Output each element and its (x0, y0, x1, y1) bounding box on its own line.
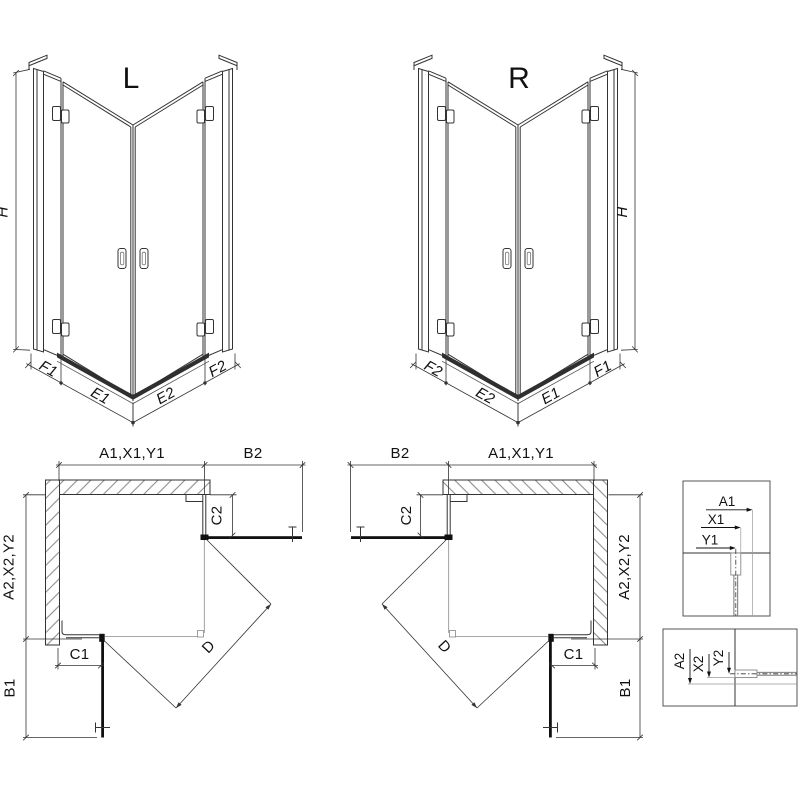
shower-enclosure-technical-drawing: L R H H F1 E1 E2 F2 F2 E2 E1 F1 A1,X1,Y1… (0, 0, 800, 800)
dim-side-width-left: A2,X2,Y2 (1, 534, 18, 600)
dim-b2-right: B2 (391, 445, 410, 462)
detail-a1-label: A1 (719, 494, 736, 509)
dim-b1-right: B1 (617, 679, 634, 698)
dim-e1-right: E1 (538, 384, 563, 408)
detail-x2-label: X2 (691, 656, 706, 673)
dim-c2-left: C2 (209, 506, 226, 526)
dim-f1-left: F1 (36, 357, 60, 381)
view-title-left: L (123, 62, 140, 95)
detail-a2-label: A2 (672, 653, 687, 670)
dim-top-width-left: A1,X1,Y1 (99, 445, 165, 462)
dim-d-right: D (434, 637, 454, 657)
drawing-canvas: L R H H F1 E1 E2 F2 F2 E2 E1 F1 A1,X1,Y1… (0, 0, 800, 800)
plan-view-right (348, 461, 644, 740)
dim-c2-right: C2 (398, 506, 415, 526)
dim-c1-left: C1 (70, 646, 90, 663)
dim-f1-right: F1 (591, 357, 615, 381)
dim-e2-right: E2 (473, 384, 498, 408)
plan-view-left (23, 461, 306, 740)
dim-height-right: H (614, 206, 631, 217)
dim-b1-left: B1 (2, 679, 19, 698)
detail-y2-label: Y2 (711, 650, 726, 667)
detail-x1-label: X1 (708, 512, 725, 527)
dim-d-left: D (199, 637, 219, 657)
dim-height-left: H (0, 206, 12, 217)
dim-e1-left: E1 (88, 384, 113, 408)
dim-side-width-right: A2,X2,Y2 (616, 534, 633, 600)
view-title-right: R (508, 62, 530, 95)
dim-b2-left: B2 (244, 445, 263, 462)
detail-y1-label: Y1 (702, 533, 719, 548)
dim-top-width-right: A1,X1,Y1 (488, 445, 554, 462)
dim-c1-right: C1 (564, 646, 584, 663)
dim-e2-left: E2 (153, 384, 178, 408)
dim-f2-right: F2 (421, 357, 445, 381)
dim-f2-left: F2 (206, 357, 230, 381)
